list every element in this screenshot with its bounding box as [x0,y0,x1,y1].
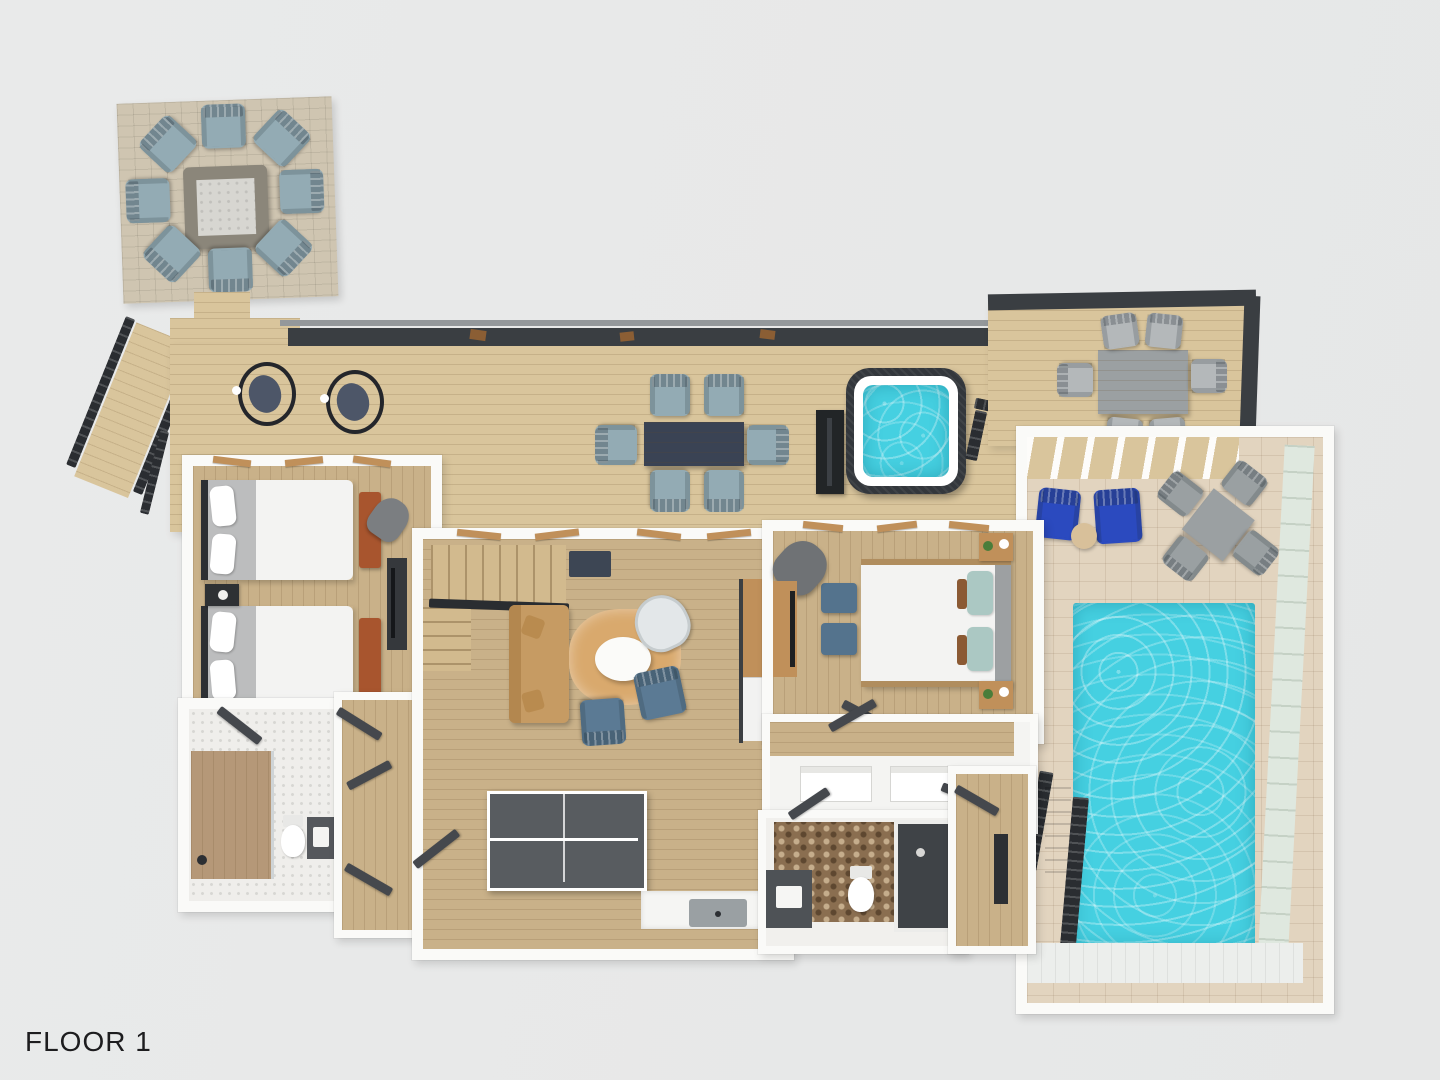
lumbar-pillow [957,635,967,665]
outdoor-dining-table [644,422,744,466]
outdoor-tv-console [816,410,844,494]
fire-pit-patio [117,96,339,303]
floor-label: FLOOR 1 [25,1026,152,1058]
bed [861,559,1011,687]
door [336,707,383,741]
window-frame [803,521,844,532]
nightstand [979,681,1013,709]
roof-edge [280,320,994,326]
floor-plan-render: FLOOR 1 [0,0,1440,1080]
shower [894,820,952,932]
pillow [209,485,237,527]
pillow [967,571,993,615]
roof-bracket [620,331,635,341]
living-room [412,528,794,960]
door [216,706,263,745]
adirondack-chair [208,247,254,293]
vanity [766,870,812,928]
window-frame [637,528,682,540]
toilet [281,815,305,857]
hot-tub [846,368,966,494]
roof-bracket [469,329,486,341]
window-frame [353,455,392,467]
roofline [288,328,990,346]
adirondack-chair [251,107,313,169]
accent-armchair [579,698,626,747]
pillow [209,611,237,653]
hanging-egg-chair [326,370,384,434]
ottoman [821,623,857,655]
window-frame [535,528,580,540]
adirondack-chair [201,103,247,149]
bed-bench [359,618,381,694]
nightstand [205,584,239,606]
window-frame [457,529,501,541]
kitchen-counter [641,891,773,929]
outdoor-dining-chair [747,425,789,465]
ottoman [821,583,857,613]
window-frame [949,521,990,532]
adirondack-chair [137,113,199,175]
bedroom-right [762,520,1044,744]
side-deck-chair [1144,312,1183,350]
bed [201,480,353,580]
outdoor-dining-chair [704,470,744,512]
pool-patio [1016,426,1334,1014]
nightstand [979,533,1013,561]
mudroom [948,766,1036,954]
adirondack-chair [125,178,171,224]
door [412,829,460,869]
pillow [209,659,236,701]
pillow [209,533,236,575]
side-deck-chair [1191,359,1227,393]
throw-pillow [521,689,545,713]
swimming-pool [1073,603,1255,947]
lounge-armchair [1093,487,1143,544]
fire-pit-gravel [196,178,256,236]
window-frame [877,521,918,533]
tv-console [773,581,797,677]
pillow [967,627,993,671]
sofa [509,605,569,723]
outdoor-dining-chair [595,425,637,465]
side-deck-dining-table [1098,350,1188,414]
window-frame [707,529,751,541]
side-deck-chair [1100,312,1140,351]
fire-pit [183,165,270,250]
lower-deck [1027,943,1303,983]
outdoor-dining-chair [650,470,690,512]
staircase [423,607,471,671]
doormat [569,551,611,577]
door [346,760,393,790]
adirondack-chair [279,169,325,215]
bed [201,606,353,706]
hanging-egg-chair [238,362,296,426]
outdoor-dining-chair [704,374,744,416]
ping-pong-table [487,791,647,891]
throw-pillow [520,614,546,640]
window-frame [285,456,324,467]
accent-armchair [633,665,688,722]
outdoor-dining-chair [650,374,690,416]
door [344,863,394,897]
bench [994,834,1008,904]
staircase [431,545,566,607]
sink [689,899,747,927]
lumbar-pillow [957,579,967,609]
toilet [848,866,874,912]
hall-floor [770,722,1014,756]
patio-side-table [1071,523,1097,549]
tv-console [387,558,407,650]
bathroom-center [758,810,968,954]
window-frame [213,456,252,468]
vanity [307,817,335,859]
shower [191,751,274,879]
door [954,785,1000,817]
side-deck-chair [1057,363,1093,397]
roof-bracket [760,329,776,340]
